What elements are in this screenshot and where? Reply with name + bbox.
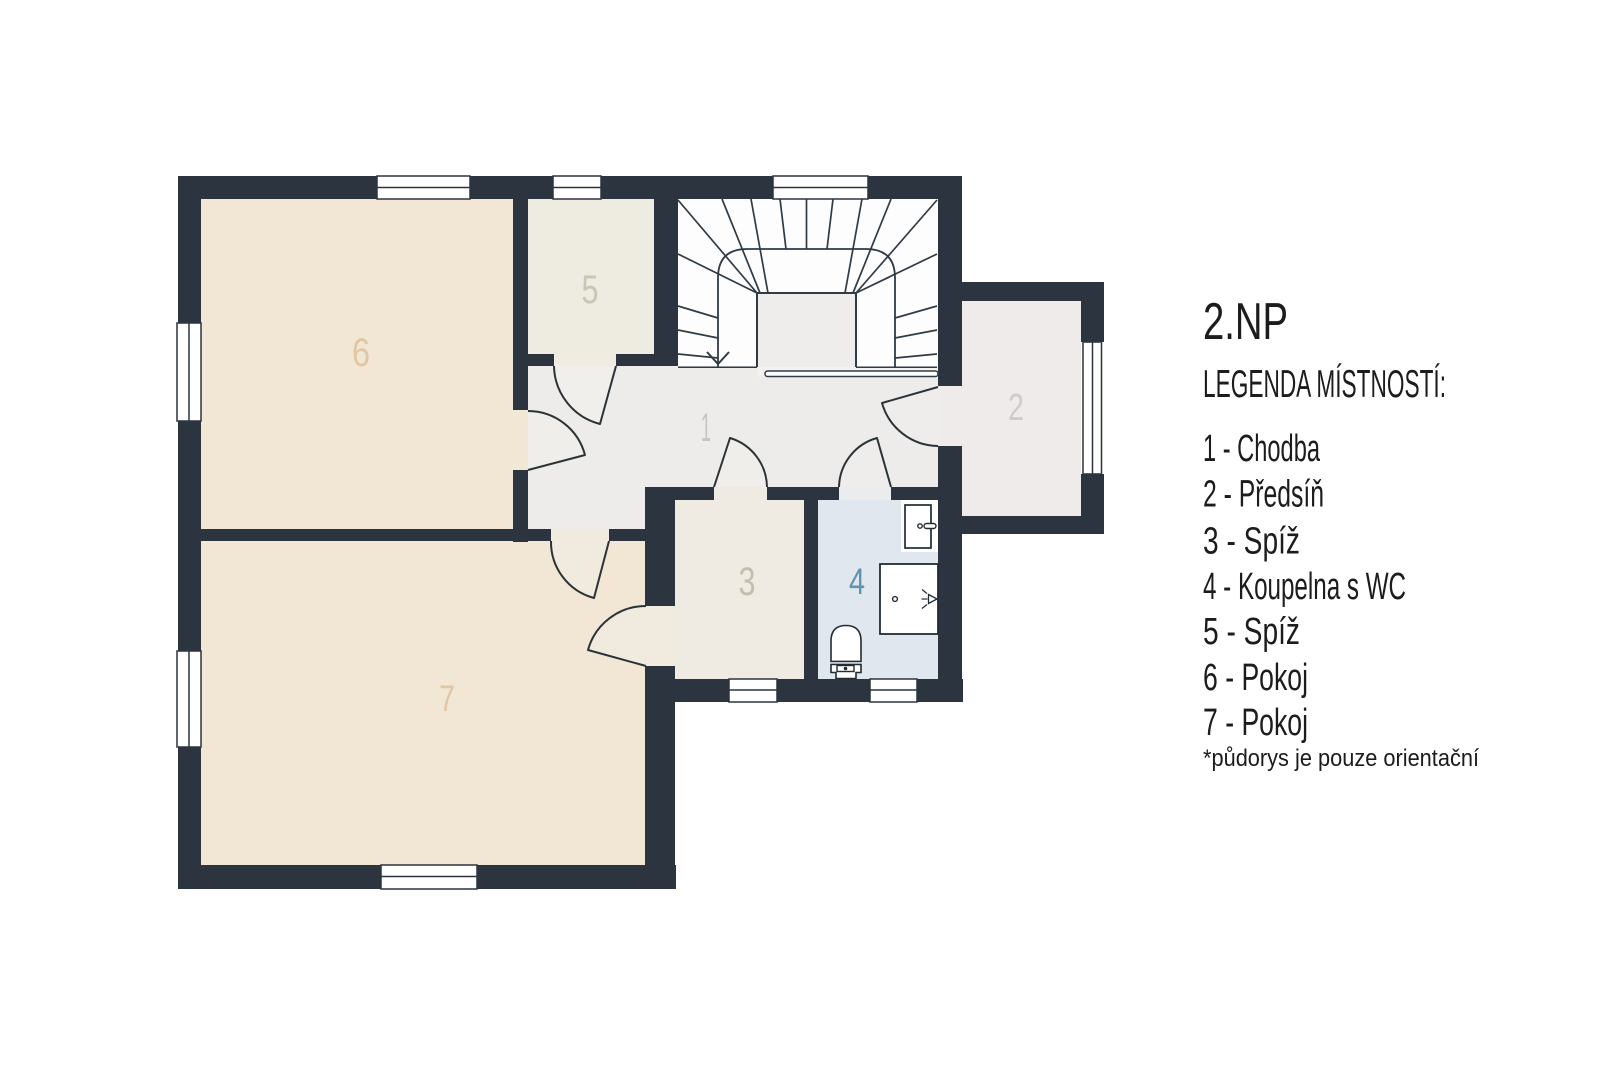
svg-text:*půdorys je pouze orientační: *půdorys je pouze orientační [1203, 745, 1479, 772]
svg-text:4: 4 [849, 561, 865, 602]
svg-text:2: 2 [1008, 387, 1024, 429]
svg-text:1: 1 [701, 406, 711, 450]
svg-text:2.NP: 2.NP [1203, 293, 1288, 351]
svg-text:3 - Spíž: 3 - Spíž [1203, 521, 1300, 563]
svg-text:LEGENDA MÍSTNOSTÍ:: LEGENDA MÍSTNOSTÍ: [1203, 363, 1446, 406]
svg-text:4 - Koupelna s WC: 4 - Koupelna s WC [1203, 566, 1406, 608]
svg-text:7 - Pokoj: 7 - Pokoj [1203, 702, 1308, 744]
svg-text:7: 7 [439, 678, 455, 719]
svg-text:3: 3 [739, 560, 756, 604]
svg-text:5: 5 [582, 268, 599, 312]
svg-text:2 - Předsíň: 2 - Předsíň [1203, 474, 1324, 516]
svg-text:6: 6 [352, 331, 370, 375]
svg-text:5 - Spíž: 5 - Spíž [1203, 611, 1300, 653]
svg-text:1 - Chodba: 1 - Chodba [1203, 428, 1321, 470]
svg-text:6 - Pokoj: 6 - Pokoj [1203, 657, 1308, 699]
